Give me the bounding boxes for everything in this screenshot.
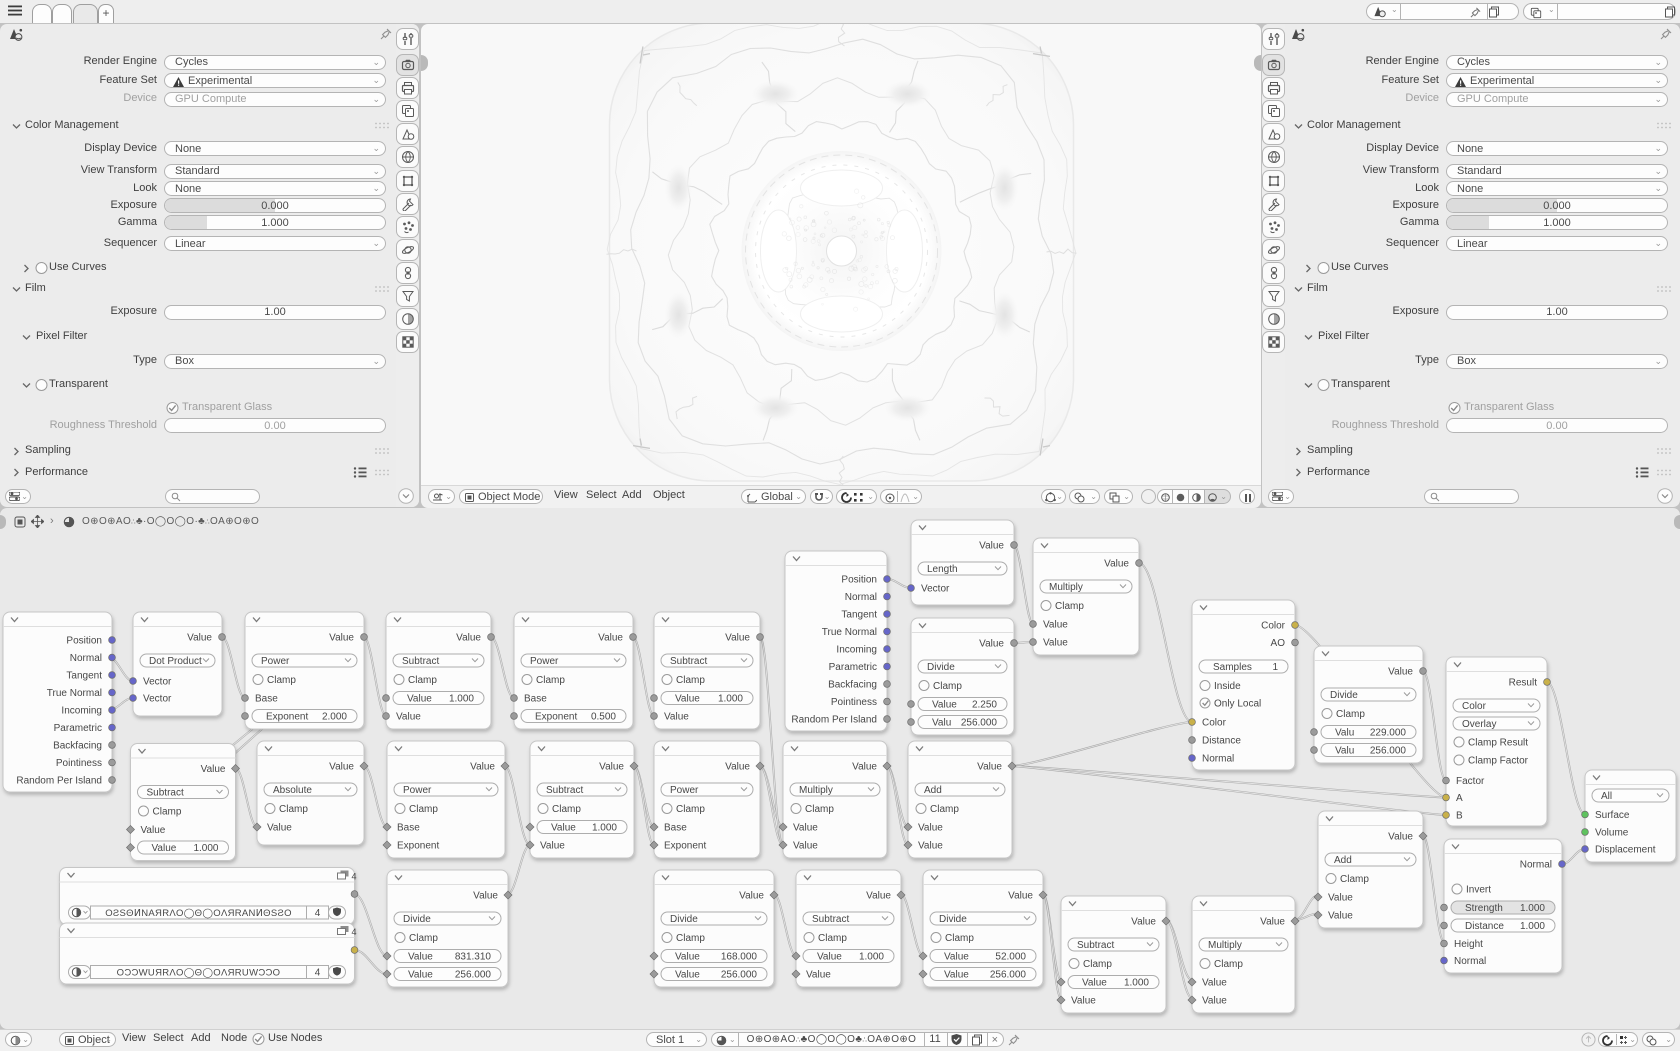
svg-text:All: All [1601,791,1612,802]
svg-text:Value: Value [1388,832,1413,843]
svg-text:Position: Position [841,575,877,586]
svg-text:Clamp: Clamp [930,804,959,815]
svg-text:Exponent: Exponent [397,841,439,852]
svg-text:Value: Value [1388,667,1413,678]
svg-text:256.000: 256.000 [961,718,998,729]
svg-text:0.500: 0.500 [591,712,616,723]
svg-text:Value: Value [725,762,750,773]
svg-text:OƆƆWUЯRΛO◯Θ◯OΛЯRUWƆƆO: OƆƆWUЯRΛO◯Θ◯OΛЯRUWƆƆO [117,968,281,979]
svg-text:Value: Value [979,639,1004,650]
svg-text:Clamp: Clamp [933,681,962,692]
svg-text:Clamp: Clamp [536,675,565,686]
svg-text:True Normal: True Normal [47,688,102,699]
svg-text:Clamp: Clamp [676,675,705,686]
svg-text:Clamp: Clamp [676,804,705,815]
svg-text:Value: Value [675,970,700,981]
svg-text:Vector: Vector [143,677,172,688]
svg-text:Value: Value [407,694,432,705]
svg-text:Value: Value [329,762,354,773]
svg-text:True Normal: True Normal [822,627,877,638]
svg-text:Value: Value [1328,893,1353,904]
svg-text:Value: Value [540,841,565,852]
svg-text:Value: Value [977,762,1002,773]
svg-text:Power: Power [403,785,432,796]
svg-text:Value: Value [599,762,624,773]
svg-text:Base: Base [397,823,420,834]
svg-text:Tangent: Tangent [66,671,102,682]
svg-text:Value: Value [1260,917,1285,928]
svg-text:Absolute: Absolute [273,785,312,796]
svg-text:Divide: Divide [927,662,955,673]
svg-text:Clamp: Clamp [279,804,308,815]
svg-text:Normal: Normal [1202,754,1234,765]
svg-text:Clamp: Clamp [1083,959,1112,970]
svg-text:Value: Value [866,891,891,902]
svg-text:Dot Product: Dot Product [149,656,202,667]
svg-text:Vector: Vector [143,694,172,705]
svg-text:Surface: Surface [1595,810,1630,821]
svg-text:Value: Value [725,633,750,644]
svg-text:Base: Base [664,823,687,834]
svg-text:Value: Value [1104,559,1129,570]
svg-text:Value: Value [918,841,943,852]
svg-text:2.250: 2.250 [972,700,997,711]
svg-text:Position: Position [66,636,102,647]
svg-text:Value: Value [739,891,764,902]
svg-text:Add: Add [924,785,942,796]
svg-text:1.000: 1.000 [449,694,474,705]
svg-text:Clamp: Clamp [153,807,182,818]
svg-text:Tangent: Tangent [841,610,877,621]
svg-text:B: B [1456,811,1463,822]
svg-text:Valu: Valu [1335,728,1354,739]
svg-text:Value: Value [1328,911,1353,922]
svg-text:Vector: Vector [921,584,950,595]
svg-text:Clamp: Clamp [676,933,705,944]
svg-text:Power: Power [530,656,559,667]
svg-text:Value: Value [918,823,943,834]
svg-text:Strength: Strength [1465,903,1503,914]
svg-text:4: 4 [315,908,321,919]
svg-text:Color: Color [1261,621,1286,632]
svg-text:Value: Value [141,825,166,836]
svg-text:256.000: 256.000 [1370,746,1407,757]
svg-text:Pointiness: Pointiness [831,697,877,708]
svg-text:Volume: Volume [1595,828,1629,839]
svg-text:Value: Value [1043,620,1068,631]
svg-text:Value: Value [979,541,1004,552]
svg-text:Random Per Island: Random Per Island [791,715,877,726]
svg-text:4: 4 [352,927,357,937]
svg-text:Multiply: Multiply [1049,582,1083,593]
svg-text:Value: Value [456,633,481,644]
svg-text:Clamp: Clamp [409,933,438,944]
svg-text:Exponent: Exponent [535,712,577,723]
svg-text:1.000: 1.000 [1520,921,1545,932]
svg-text:Clamp: Clamp [408,675,437,686]
svg-text:1.000: 1.000 [193,843,218,854]
svg-text:Clamp Result: Clamp Result [1468,738,1528,749]
svg-text:Distance: Distance [1465,921,1504,932]
svg-text:Subtract: Subtract [670,656,707,667]
svg-text:Value: Value [1202,978,1227,989]
svg-text:Value: Value [1043,638,1068,649]
svg-text:Value: Value [408,952,433,963]
svg-text:Valu: Valu [1335,746,1354,757]
svg-text:Valu: Valu [932,718,951,729]
svg-text:Displacement: Displacement [1595,845,1656,856]
svg-text:Base: Base [255,694,278,705]
svg-text:Value: Value [675,952,700,963]
svg-text:Value: Value [944,970,969,981]
svg-text:Divide: Divide [670,914,698,925]
svg-text:A: A [1456,793,1463,804]
svg-text:Value: Value [817,952,842,963]
svg-text:Backfacing: Backfacing [53,741,102,752]
svg-text:Clamp: Clamp [409,804,438,815]
svg-text:Clamp: Clamp [1055,601,1084,612]
svg-text:Divide: Divide [1330,690,1358,701]
svg-text:Value: Value [793,841,818,852]
svg-text:Value: Value [793,823,818,834]
svg-text:Color: Color [1462,701,1487,712]
svg-text:2.000: 2.000 [322,712,347,723]
svg-text:Length: Length [927,564,958,575]
svg-text:Height: Height [1454,939,1483,950]
svg-text:OƧSΘͶNAЯRΛO◯Θ◯OΛЯRANͶΘSƧO: OƧSΘͶNAЯRΛO◯Θ◯OΛЯRANͶΘSƧO [105,908,292,919]
svg-text:Inside: Inside [1214,681,1241,692]
svg-text:Subtract: Subtract [147,788,184,799]
svg-text:831.310: 831.310 [455,952,492,963]
svg-text:Value: Value [664,712,689,723]
svg-text:Value: Value [329,633,354,644]
svg-text:Distance: Distance [1202,736,1241,747]
svg-text:168.000: 168.000 [721,952,758,963]
svg-text:Value: Value [152,843,177,854]
svg-text:4: 4 [352,872,357,882]
svg-text:Add: Add [1334,855,1352,866]
svg-text:Divide: Divide [939,914,967,925]
svg-text:Subtract: Subtract [402,656,439,667]
svg-text:Value: Value [473,891,498,902]
svg-text:Divide: Divide [403,914,431,925]
svg-text:256.000: 256.000 [455,970,492,981]
svg-text:Value: Value [201,764,226,775]
svg-text:Backfacing: Backfacing [828,680,877,691]
svg-text:4: 4 [315,968,321,979]
svg-text:229.000: 229.000 [1370,728,1407,739]
svg-text:Invert: Invert [1466,885,1491,896]
svg-text:Power: Power [261,656,290,667]
svg-text:Value: Value [396,712,421,723]
svg-text:Power: Power [670,785,699,796]
svg-text:Normal: Normal [70,653,102,664]
svg-text:Base: Base [524,694,547,705]
svg-text:Clamp: Clamp [1340,874,1369,885]
svg-text:Clamp: Clamp [805,804,834,815]
svg-text:1.000: 1.000 [592,823,617,834]
svg-text:Clamp: Clamp [1336,709,1365,720]
svg-text:Samples: Samples [1213,662,1252,673]
svg-text:Value: Value [1131,917,1156,928]
svg-text:Clamp: Clamp [1214,959,1243,970]
svg-text:Value: Value [598,633,623,644]
svg-text:Clamp: Clamp [945,933,974,944]
svg-text:Subtract: Subtract [812,914,849,925]
svg-text:Exponent: Exponent [664,841,706,852]
svg-text:Value: Value [187,633,212,644]
svg-text:Value: Value [1071,996,1096,1007]
svg-text:256.000: 256.000 [721,970,758,981]
svg-text:Value: Value [932,700,957,711]
svg-text:Multiply: Multiply [1208,940,1242,951]
svg-text:Parametric: Parametric [829,662,877,673]
svg-text:Value: Value [408,970,433,981]
svg-text:Exponent: Exponent [266,712,308,723]
svg-text:1.000: 1.000 [1124,978,1149,989]
svg-text:Incoming: Incoming [836,645,877,656]
svg-text:Factor: Factor [1456,776,1485,787]
svg-text:1: 1 [1272,662,1278,673]
svg-text:Value: Value [944,952,969,963]
svg-text:Color: Color [1202,718,1227,729]
svg-text:Normal: Normal [845,592,877,603]
svg-text:Multiply: Multiply [799,785,833,796]
svg-text:Value: Value [1202,996,1227,1007]
svg-text:1.000: 1.000 [1520,903,1545,914]
svg-text:Clamp: Clamp [552,804,581,815]
svg-text:52.000: 52.000 [995,952,1026,963]
svg-text:Random Per Island: Random Per Island [16,776,102,787]
svg-text:Pointiness: Pointiness [56,758,102,769]
svg-text:Parametric: Parametric [54,723,102,734]
svg-text:Value: Value [806,970,831,981]
svg-text:Result: Result [1509,678,1538,689]
svg-text:1.000: 1.000 [859,952,884,963]
svg-text:Value: Value [675,694,700,705]
svg-text:Value: Value [1082,978,1107,989]
svg-text:Value: Value [852,762,877,773]
svg-text:Subtract: Subtract [1077,940,1114,951]
svg-text:Clamp: Clamp [818,933,847,944]
svg-text:Value: Value [1008,891,1033,902]
svg-text:Normal: Normal [1454,956,1486,967]
svg-text:Value: Value [267,823,292,834]
svg-text:1.000: 1.000 [718,694,743,705]
svg-text:Value: Value [551,823,576,834]
svg-text:Normal: Normal [1520,860,1552,871]
svg-text:Clamp: Clamp [267,675,296,686]
svg-text:Incoming: Incoming [61,706,102,717]
svg-text:Only Local: Only Local [1214,699,1261,710]
svg-text:Value: Value [470,762,495,773]
svg-text:AO: AO [1271,638,1286,649]
svg-text:Clamp Factor: Clamp Factor [1468,756,1529,767]
svg-text:256.000: 256.000 [990,970,1027,981]
svg-text:Overlay: Overlay [1462,719,1496,730]
svg-text:Subtract: Subtract [546,785,583,796]
